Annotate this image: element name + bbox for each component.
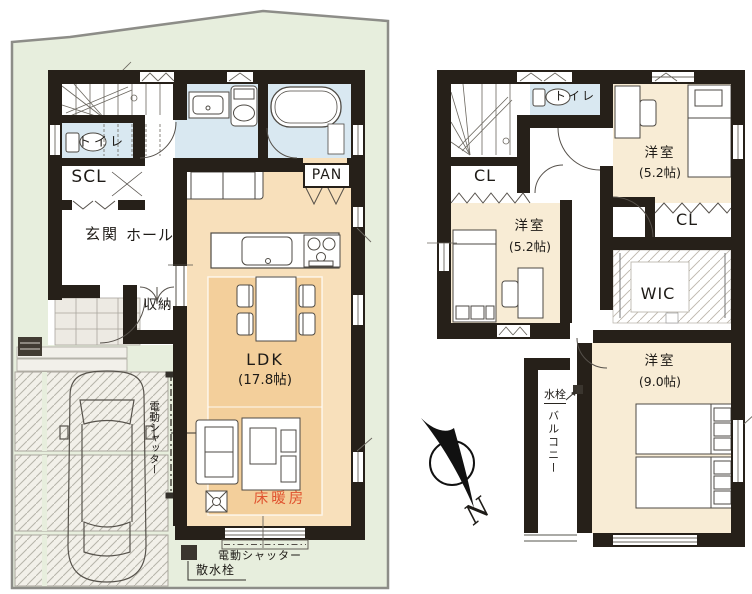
bed-icon-bedroom3b (636, 457, 735, 508)
label-ldk-size: (17.8帖) (215, 373, 315, 389)
meter-box-icon (18, 337, 42, 356)
label-closet-right: CL (662, 211, 712, 229)
living-sofa-icon (196, 420, 238, 484)
label-garage-shutter: 電動シャッター (148, 401, 160, 479)
living-table-icon (242, 418, 300, 490)
label-bedroom2-size: (5.2帖) (490, 240, 570, 254)
label-scl: SCL (58, 168, 120, 188)
washbasin-icon (189, 92, 229, 118)
label-toilet-2f: トイレ (545, 90, 605, 104)
label-bedroom1-size: (5.2帖) (620, 166, 700, 180)
label-faucet: 水栓 (544, 389, 566, 404)
label-bedroom3: 洋室 (620, 354, 700, 370)
label-storage: 収納 (128, 298, 188, 314)
bed-icon-bedroom3a (636, 404, 735, 454)
label-closet-left: CL (460, 167, 510, 185)
bed-icon-bedroom1 (688, 85, 731, 177)
speaker-icon (206, 491, 227, 512)
label-floor-heating: 床暖房 (230, 491, 330, 508)
label-toilet-1f: トイレ (72, 136, 132, 151)
floor-plan-canvas: トイレ SCL 玄関 ホール 収納 PAN LDK (17.8帖) 床暖房 電動… (0, 0, 752, 594)
compass-icon (421, 418, 474, 508)
label-balcony: バルコニー (546, 410, 559, 498)
washing-machine-icon (231, 86, 257, 126)
stove-icon (304, 235, 340, 267)
label-ldk: LDK (215, 351, 315, 369)
label-bedroom3-size: (9.0帖) (620, 375, 700, 389)
label-bedroom1: 洋室 (620, 146, 700, 162)
label-sprinkler: 散水栓 (196, 564, 235, 578)
label-pantry: PAN (303, 163, 351, 188)
label-hall: ホール (118, 227, 182, 244)
label-bedroom2: 洋室 (490, 219, 570, 235)
label-wic: WIC (628, 285, 688, 303)
label-window-shutter: 電動シャッター (200, 550, 320, 563)
